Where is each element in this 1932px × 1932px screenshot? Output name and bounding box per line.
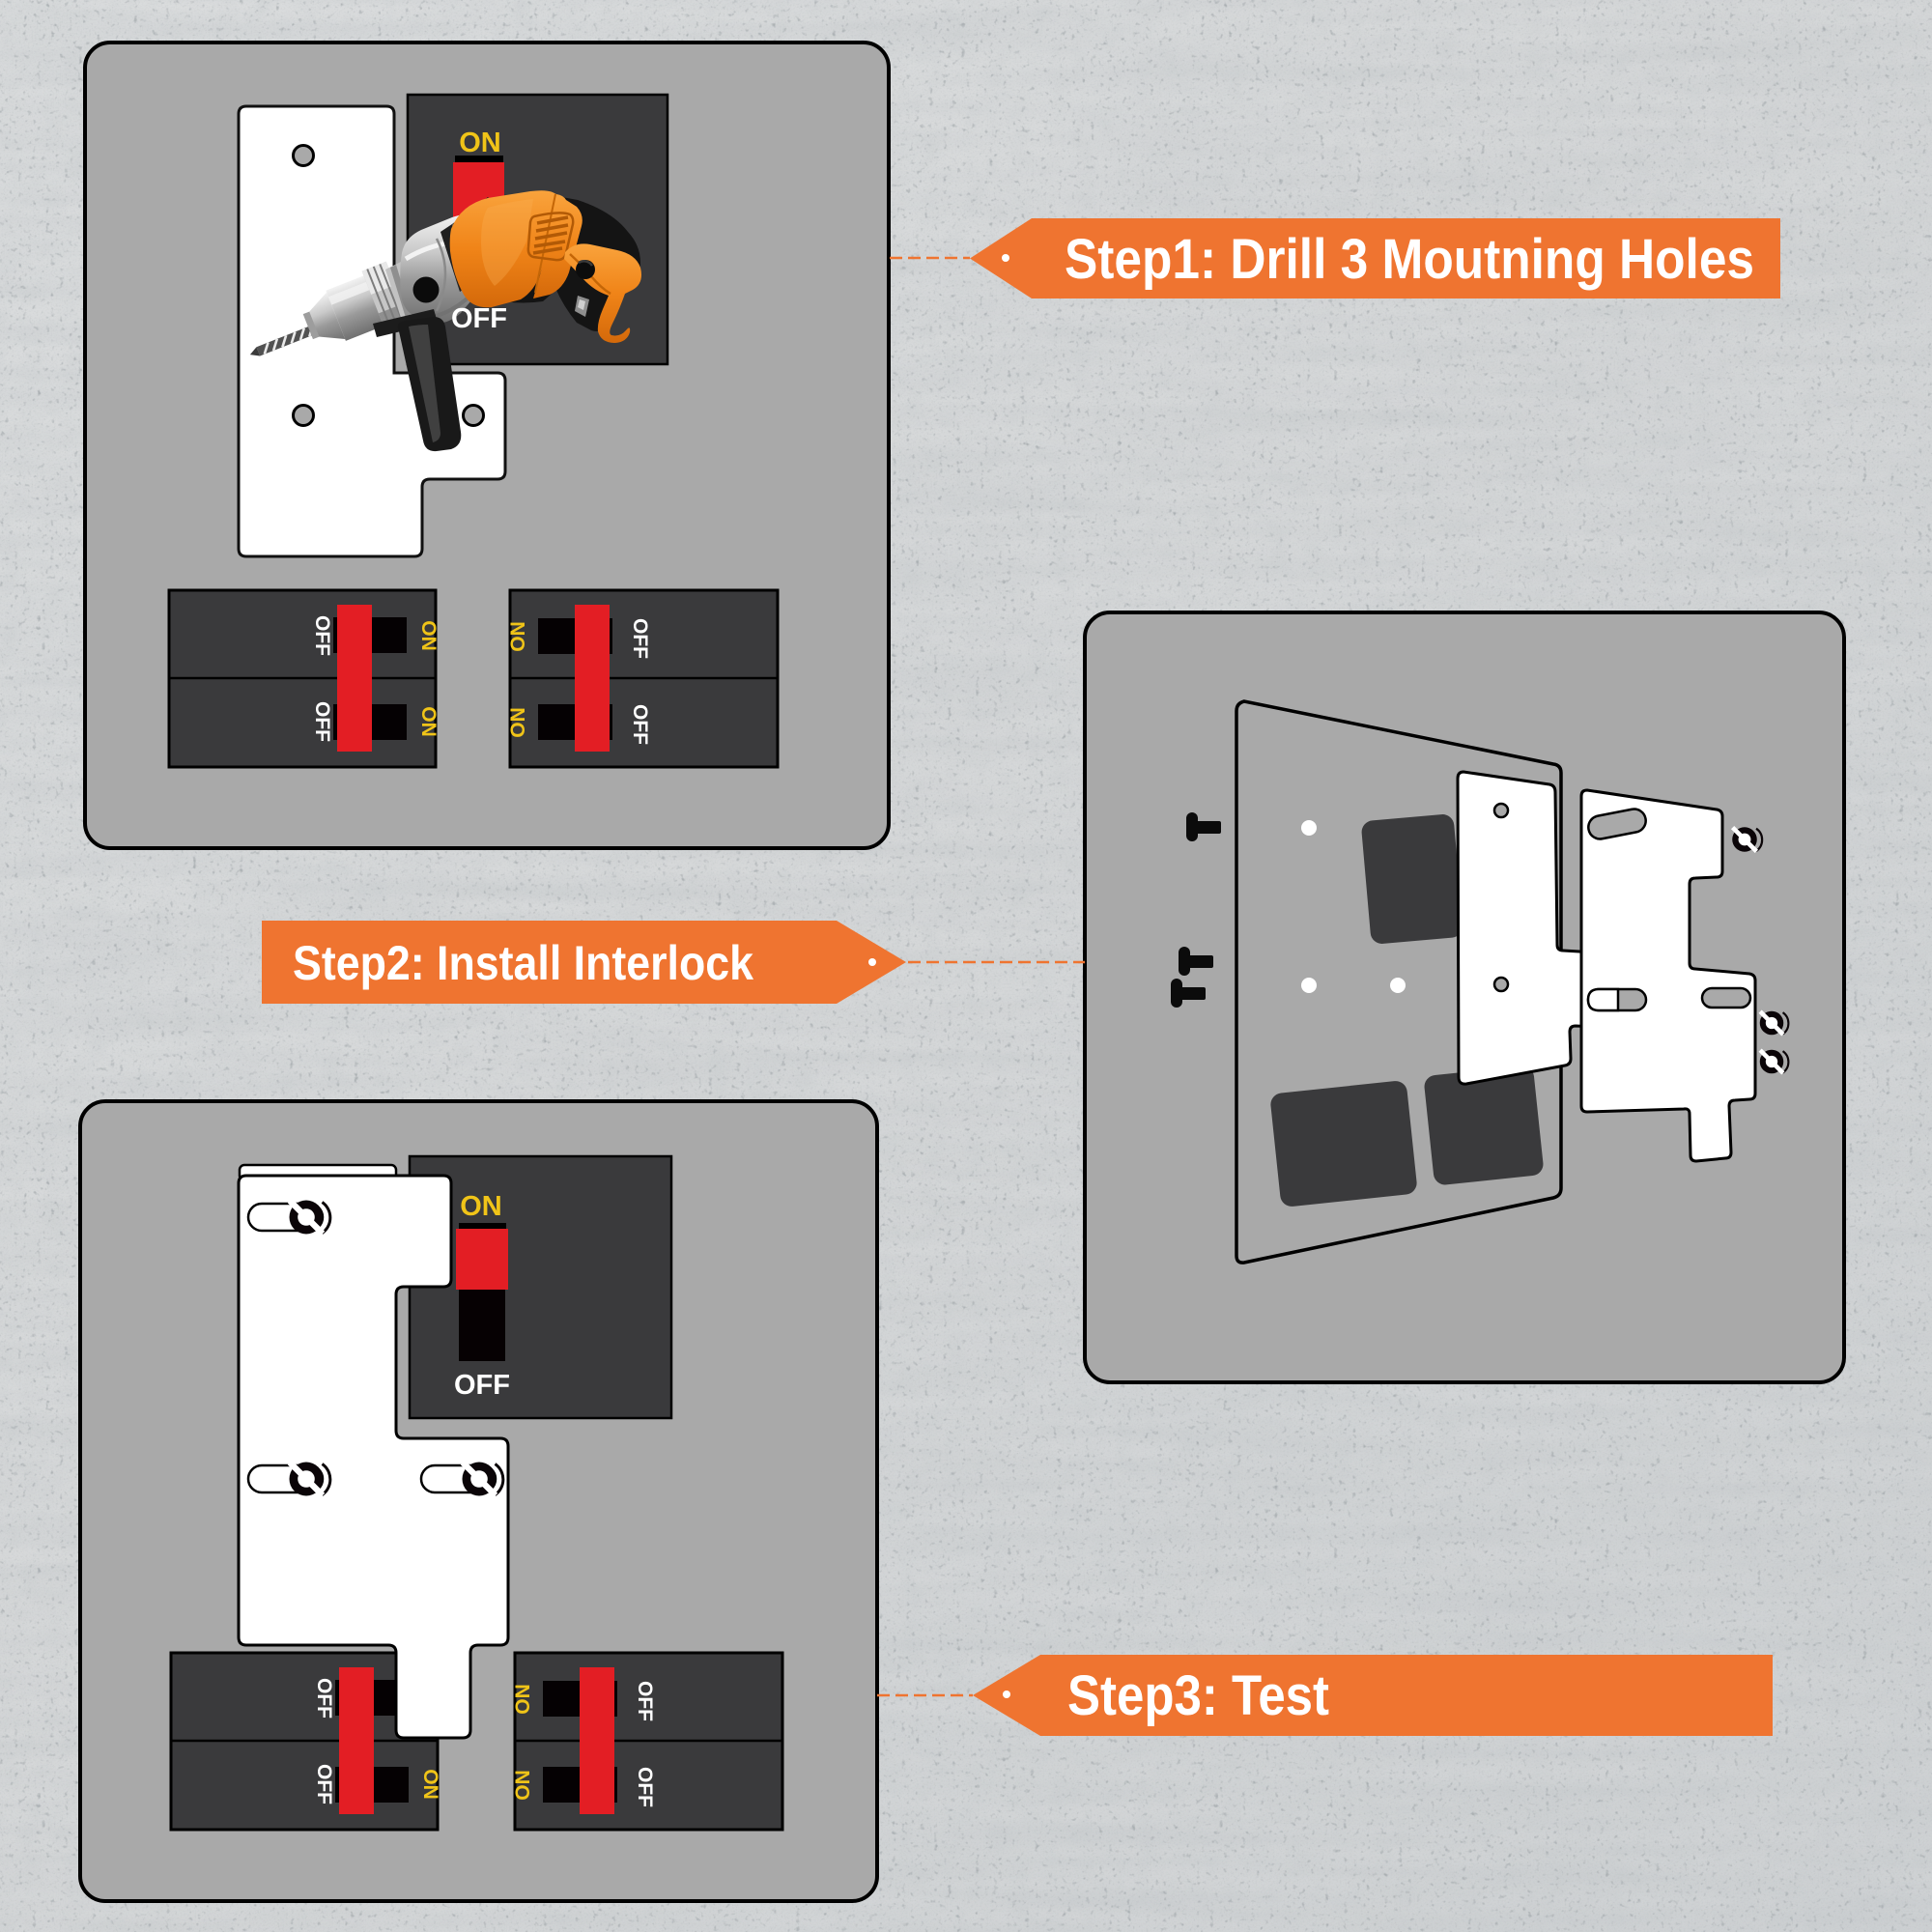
svg-text:ON: ON [507,707,529,738]
svg-text:ON: ON [507,621,529,652]
svg-text:OFF: OFF [629,618,651,659]
svg-text:OFF: OFF [629,704,651,745]
svg-text:ON: ON [417,706,440,737]
svg-text:OFF: OFF [311,615,333,656]
svg-text:OFF: OFF [311,701,333,742]
svg-text:OFF: OFF [454,1370,510,1401]
svg-text:Step1: Drill 3 Moutning Holes: Step1: Drill 3 Moutning Holes [1065,228,1754,291]
svg-text:ON: ON [460,1191,502,1222]
svg-text:Step3: Test: Step3: Test [1067,1664,1329,1727]
svg-text:ON: ON [459,128,501,158]
svg-text:Step2: Install Interlock: Step2: Install Interlock [293,936,753,990]
svg-text:OFF: OFF [451,303,507,334]
svg-text:ON: ON [417,620,440,651]
